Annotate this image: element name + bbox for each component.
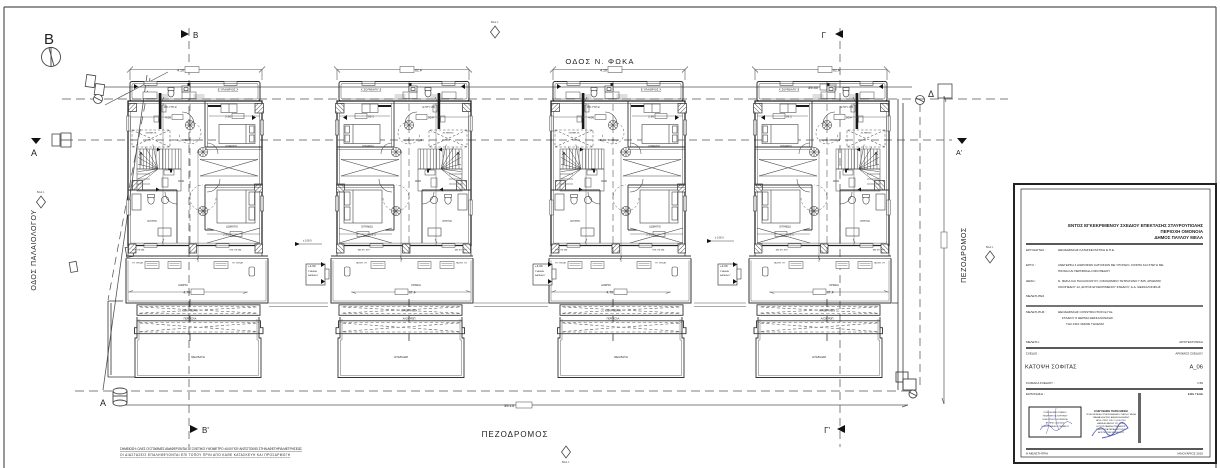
svg-text:ΣΤΑΘΜΗ: ΣΤΑΘΜΗ	[308, 270, 317, 273]
svg-text:ΔΑΠΕΔΟΥ: ΔΑΠΕΔΟΥ	[720, 274, 731, 277]
svg-text:ΜΕΛΕΤΗΤΕΣ: ΜΕΛΕΤΗΤΕΣ	[1026, 294, 1044, 298]
svg-text:ΟΙΚΟΠΕΔΟΥ 12, ΕΝΤΟΣ ΕΓΚΕΚΡΙΜΕΝ: ΟΙΚΟΠΕΔΟΥ 12, ΕΝΤΟΣ ΕΓΚΕΚΡΙΜΕΝΟΥ ΣΧΕΔΙΟΥ…	[1058, 285, 1161, 289]
svg-text:ΜΕΛΕΤΗΤΗΣ :: ΜΕΛΕΤΗΤΗΣ :	[1026, 310, 1046, 314]
svg-text:Μ.α.τ.: Μ.α.τ.	[986, 245, 994, 249]
svg-text:ΔΗΜΟΣ ΠΑΥΛΟΥ ΜΕΛΑ: ΔΗΜΟΣ ΠΑΥΛΟΥ ΜΕΛΑ	[1154, 235, 1203, 240]
svg-text:ΕΛΕΓΧΘΗΚΕ ΠΑΡΑΛΗΦΘΗ: ΕΛΕΓΧΘΗΚΕ ΠΑΡΑΛΗΦΘΗ	[1094, 409, 1128, 413]
svg-text:ΟΙ ΔΙΑΣΤΑΣΕΙΣ ΕΠΑΛΗΘΕΥΟΝΤΑΙ ΕΠ: ΟΙ ΔΙΑΣΤΑΣΕΙΣ ΕΠΑΛΗΘΕΥΟΝΤΑΙ ΕΠΙ ΤΟΠΟΥ ΠΡ…	[120, 453, 291, 457]
svg-text:Η ΔΙΕΥΘΥΝΟΥΣΑ ΥΠΗΡΕΣΙΑ: Η ΔΙΕΥΘΥΝΟΥΣΑ ΥΠΗΡΕΣΙΑ	[1043, 418, 1069, 421]
svg-text:B: B	[193, 31, 198, 40]
svg-text:ΚΑΤΟΨΗ ΣΟΦΙΤΑΣ: ΚΑΤΟΨΗ ΣΟΦΙΤΑΣ	[1025, 365, 1077, 371]
svg-text:ΕΡΓΟ :: ΕΡΓΟ :	[1026, 263, 1036, 267]
svg-text:ΤΜΗΜΑ ΕΚΔΟΣΗΣ ΑΔΕΙΩΝ ΔΟΜΗΣΗΣ: ΤΜΗΜΑ ΕΚΔΟΣΗΣ ΑΔΕΙΩΝ ΔΟΜΗΣΗΣ	[1093, 416, 1131, 419]
svg-text:ΚΛΙΜΑΚΑ ΣΧΕΔΙΟΥ :: ΚΛΙΜΑΚΑ ΣΧΕΔΙΟΥ :	[1026, 381, 1055, 385]
svg-text:± 0.00 Χ: ± 0.00 Χ	[715, 237, 724, 240]
svg-text:ΠΙΣΙΝΑ ΚΑΙ ΠΕΡΙΦΡΑΞΗ ΟΙΚΟΠΕΔΟΥ: ΠΙΣΙΝΑ ΚΑΙ ΠΕΡΙΦΡΑΞΗ ΟΙΚΟΠΕΔΟΥ	[1058, 269, 1110, 273]
svg-text:Μ.α.τ.: Μ.α.τ.	[491, 20, 499, 24]
svg-text:Ν. ΦΩΚΑ ΚΑΙ ΠΑΛΑΙΟΛΟΓΟΥ, ΟΙΚΟΔ: Ν. ΦΩΚΑ ΚΑΙ ΠΑΛΑΙΟΛΟΓΟΥ, ΟΙΚΟΔΟΜΙΚΟ ΤΕΤΡ…	[1058, 279, 1161, 283]
svg-text:ΠΕΡΙΟΧΗ ΟΜΟΝΟΙΑ: ΠΕΡΙΟΧΗ ΟΜΟΝΟΙΑ	[1161, 229, 1204, 234]
svg-text:ΣΗΜΕΙΩΣΗ: ΟΛΕΣ ΟΙ ΣΤΑΘΜΕΣ ΑΝΑΦ: ΣΗΜΕΙΩΣΗ: ΟΛΕΣ ΟΙ ΣΤΑΘΜΕΣ ΑΝΑΦΕΡΟΝΤΑΙ ΣΕ…	[120, 447, 302, 451]
svg-text:B': B'	[202, 426, 209, 435]
svg-text:39.40: 39.40	[808, 85, 819, 90]
svg-text:Δ: Δ	[928, 89, 934, 99]
svg-text:Η ΜΕΛΕΤΗΤΡΙΑ: Η ΜΕΛΕΤΗΤΡΙΑ	[1026, 452, 1048, 456]
svg-text:+4.00: +4.00	[720, 264, 728, 268]
svg-text:ΣΤΑΘΜΗ: ΣΤΑΘΜΗ	[535, 270, 544, 273]
svg-text:ΜΕΛΕΤΗ :: ΜΕΛΕΤΗ :	[1026, 340, 1040, 344]
svg-text:ΕΜΕ ΓΕΩΕ: ΕΜΕ ΓΕΩΕ	[1188, 392, 1203, 396]
svg-text:ΠΟΛΕΟΔΟΜΙΚΗ ΥΠΗΡΕΣΙΑ ΔΗΜΟΥ ΠΑΥ: ΠΟΛΕΟΔΟΜΙΚΗ ΥΠΗΡΕΣΙΑ ΔΗΜΟΥ ΠΑΥΛΟΥ ΜΕΛΑ	[1086, 413, 1136, 416]
svg-text:ΕΝΤΟΣ ΕΓΚΕΚΡΙΜΕΝΟΥ ΣΧΕΔΙΟΥ ΕΠΕ: ΕΝΤΟΣ ΕΓΚΕΚΡΙΜΕΝΟΥ ΣΧΕΔΙΟΥ ΕΠΕΚΤΑΣΗΣ ΣΤΑ…	[1068, 223, 1203, 228]
svg-text:Γ: Γ	[822, 31, 827, 40]
svg-text:ΣΤΑΥΡΟΥΛΑ ΠΑΠΑΔΟΠΟΥΛΟΥ: ΣΤΑΥΡΟΥΛΑ ΠΑΠΑΔΟΠΟΥΛΟΥ	[1096, 428, 1126, 431]
svg-text:ΘΕΣΗ :: ΘΕΣΗ :	[1026, 279, 1036, 283]
svg-text:ΟΔΟΣ Ν. ΦΩΚΑ: ΟΔΟΣ Ν. ΦΩΚΑ	[565, 57, 634, 66]
svg-text:Μ.α.τ.: Μ.α.τ.	[562, 460, 570, 464]
svg-text:ΣΧΕΔΙΟ :: ΣΧΕΔΙΟ :	[1026, 352, 1039, 356]
svg-text:ΑΡΙΘ. ΠΡΩΤ. 2312 / 14.05.2015: ΑΡΙΘ. ΠΡΩΤ. 2312 / 14.05.2015	[1096, 419, 1126, 422]
svg-text:A: A	[31, 148, 37, 158]
svg-text:ΘΕΟΔΩΡΑΚΗΣ ΚΑΤΑΣΚΕΥΑΣΤΙΚΗ Ε.Π.: ΘΕΟΔΩΡΑΚΗΣ ΚΑΤΑΣΚΕΥΑΣΤΙΚΗ Ε.Π.Ε.	[1058, 248, 1115, 252]
svg-text:"ΘΕΩΡΗΘΗ ΓΙΑ ΧΟΡΗΓΗΣΗ": "ΘΕΩΡΗΘΗ ΓΙΑ ΧΟΡΗΓΗΣΗ"	[1042, 415, 1067, 418]
svg-text:ΘΕΟΔΩΡΑΚΗΣ CONSTRUCTION Ε.Π.Ε.: ΘΕΟΔΩΡΑΚΗΣ CONSTRUCTION Ε.Π.Ε.	[1058, 310, 1113, 314]
svg-text:ΙΑΝΟΥΑΡΙΟΣ 2015: ΙΑΝΟΥΑΡΙΟΣ 2015	[1177, 452, 1203, 456]
svg-text:+4.00: +4.00	[535, 264, 543, 268]
svg-text:Μ.α.τ.: Μ.α.τ.	[37, 190, 45, 194]
svg-text:ΣΤΑΘΜΗ: ΣΤΑΘΜΗ	[720, 270, 729, 273]
svg-text:Α_06: Α_06	[1189, 365, 1203, 371]
svg-text:ΠΕΖΟΔΡΟΜΟΣ: ΠΕΖΟΔΡΟΜΟΣ	[961, 227, 968, 283]
svg-text:ΣΤΑΔΙΟΥ 8 ΘΕΡΜΗ ΘΕΣΣΑΛΟΝΙΚΗΣ: ΣΤΑΔΙΟΥ 8 ΘΕΡΜΗ ΘΕΣΣΑΛΟΝΙΚΗΣ	[1062, 316, 1113, 320]
svg-text:ΠΕΖΟΔΡΟΜΟΣ: ΠΕΖΟΔΡΟΜΟΣ	[482, 430, 549, 439]
svg-text:± 0.00 Χ: ± 0.00 Χ	[303, 240, 312, 243]
svg-text:ΑΡΙΘΜΟΣ ΣΧΕΔΙΟΥ: ΑΡΙΘΜΟΣ ΣΧΕΔΙΟΥ	[1175, 352, 1203, 356]
svg-text:ΟΔΟΣ ΠΑΛΑΙΟΛΟΓΟΥ: ΟΔΟΣ ΠΑΛΑΙΟΛΟΓΟΥ	[31, 209, 38, 290]
svg-text:39.13: 39.13	[504, 403, 515, 408]
svg-text:A': A'	[956, 150, 962, 157]
svg-text:A: A	[100, 398, 106, 408]
svg-text:Ο ΠΡΟΪΣΤΑΜΕΝΟΣ ΤΜΗΜΑΤΟΣ: Ο ΠΡΟΪΣΤΑΜΕΝΟΣ ΤΜΗΜΑΤΟΣ	[1041, 425, 1070, 428]
svg-text:+4.00: +4.00	[308, 264, 316, 268]
svg-text:ΑΡ. ΠΡΩΤ. 4521/2015: ΑΡ. ΠΡΩΤ. 4521/2015	[1046, 422, 1064, 425]
svg-text:B: B	[44, 31, 54, 48]
svg-text:1:50: 1:50	[1197, 381, 1203, 385]
svg-text:ΕΚΠΟΝΗΣΗ :: ΕΚΠΟΝΗΣΗ :	[1026, 392, 1045, 396]
svg-text:ΕΡΓΟΔΟΤΗΣ :: ΕΡΓΟΔΟΤΗΣ :	[1026, 248, 1046, 252]
svg-text:ΔΑΠΕΔΟΥ: ΔΑΠΕΔΟΥ	[308, 274, 319, 277]
svg-text:ΤΗΛ 2310 464000 ΤΗΛΕΟΜ: ΤΗΛ 2310 464000 ΤΗΛΕΟΜ	[1066, 322, 1104, 326]
svg-text:Γ': Γ'	[824, 426, 830, 435]
svg-text:ΑΝΕΓΕΡΣΗ 4 ΔΙΩΡΟΦΩΝ ΚΑΤΟΙΚΙΩΝ: ΑΝΕΓΕΡΣΗ 4 ΔΙΩΡΟΦΩΝ ΚΑΤΟΙΚΙΩΝ ΜΕ ΥΠΟΓΕΙΟ…	[1058, 263, 1163, 267]
svg-text:ΑΡΧΙΤΕΚΤΟΝΙΚΑ: ΑΡΧΙΤΕΚΤΟΝΙΚΑ	[1179, 340, 1203, 344]
svg-text:ΔΑΠΕΔΟΥ: ΔΑΠΕΔΟΥ	[535, 274, 546, 277]
